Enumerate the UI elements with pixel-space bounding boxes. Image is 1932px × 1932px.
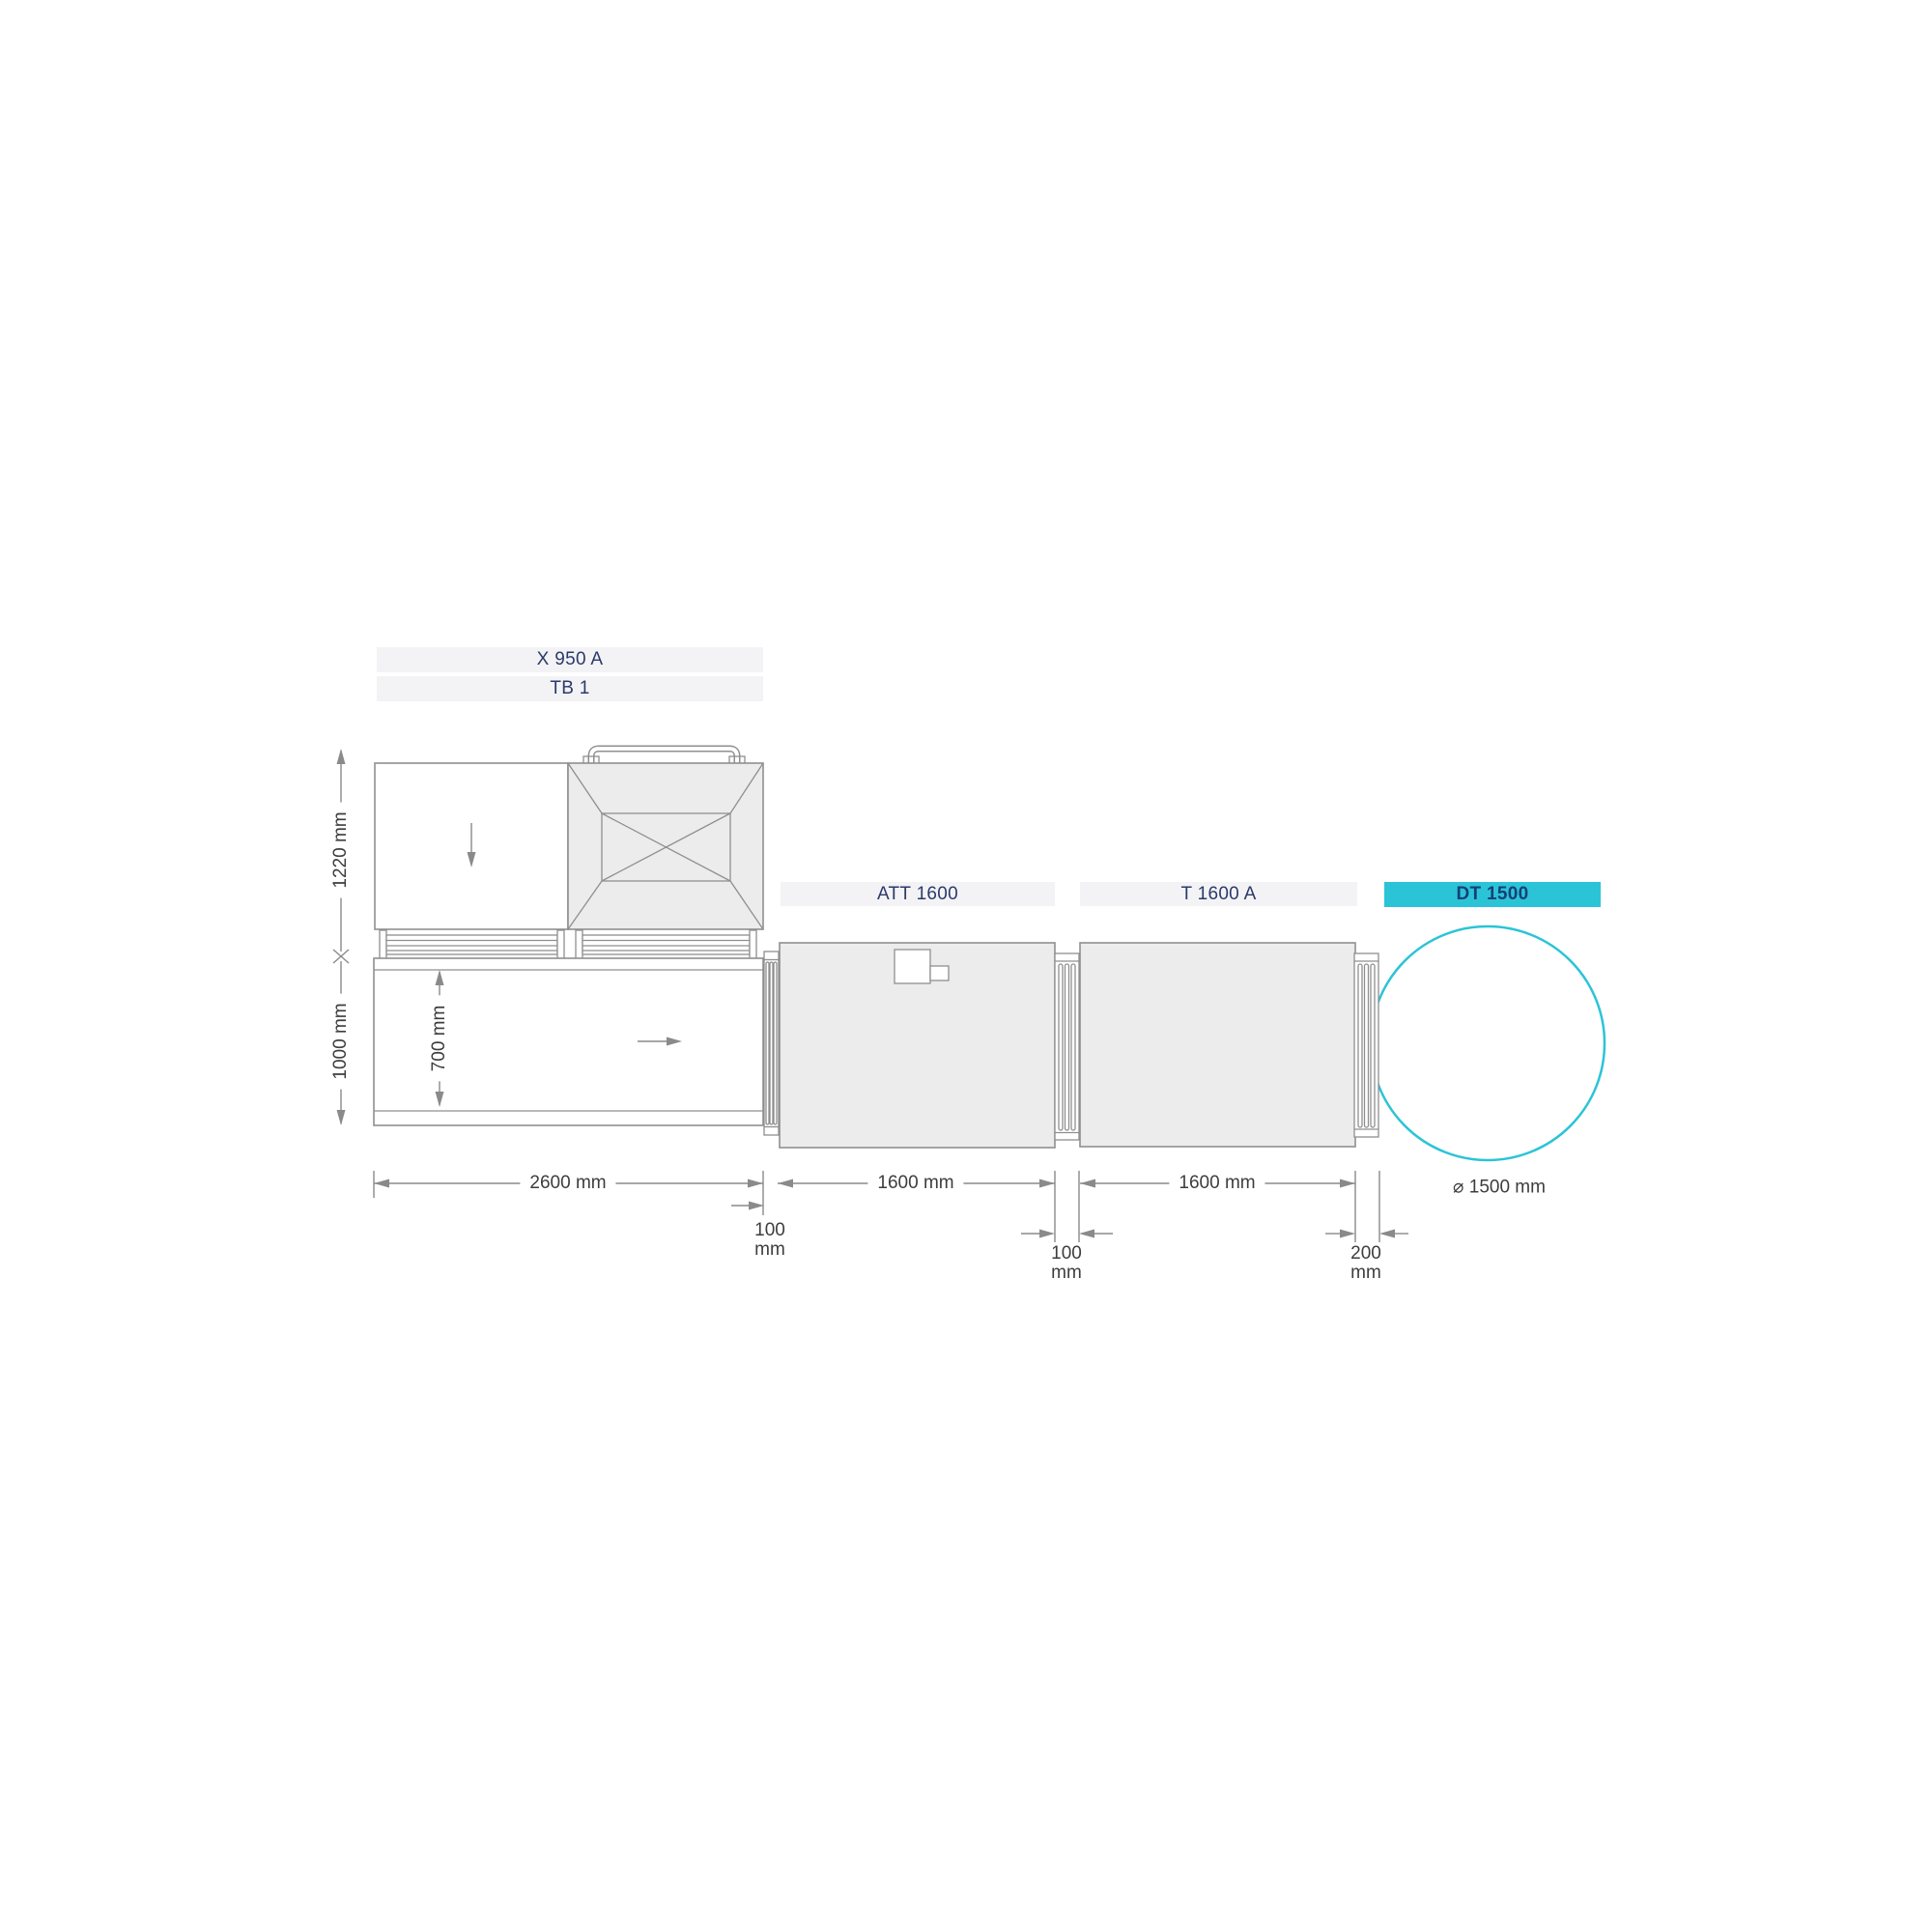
label-t1600a: T 1600 A (1180, 884, 1256, 905)
dim-gap-att-t: 100 mm (1051, 1244, 1082, 1283)
infeed-box (375, 763, 568, 929)
dim-gap-table-att-value: 100 (754, 1221, 785, 1240)
roller-bracket (750, 930, 756, 960)
roller-track (582, 935, 750, 954)
dim-gap-att-t-unit: mm (1051, 1264, 1082, 1283)
top-roller-conveyor (380, 930, 756, 960)
dim-gap-table-att-unit: mm (754, 1240, 785, 1260)
att-top-unit (895, 950, 930, 983)
roller-junction-2 (1055, 953, 1079, 1140)
label-bar-t1600a: T 1600 A (1080, 882, 1357, 906)
att-top-unit-attachment (930, 966, 949, 980)
label-bar-dt1500: DT 1500 (1384, 882, 1601, 907)
diagram-drawing (0, 0, 1932, 1932)
dim-turntable-diameter: ⌀ 1500 mm (1453, 1177, 1546, 1199)
turntable-circle (1371, 926, 1605, 1160)
roller-track (386, 935, 557, 954)
roller-bracket (576, 930, 582, 960)
t-machine (1080, 943, 1355, 1147)
att-machine (780, 943, 1055, 1148)
roller-bracket (380, 930, 386, 960)
roller-junction-1 (764, 952, 779, 1135)
label-x950a: X 950 A (537, 649, 604, 670)
dim-t-length: 1600 mm (1169, 1173, 1264, 1194)
dim-table-length: 2600 mm (520, 1173, 615, 1194)
dim-att-length: 1600 mm (867, 1173, 963, 1194)
dim-gap-att-t-value: 100 (1051, 1244, 1082, 1264)
dim-belt-width: 700 mm (429, 996, 450, 1082)
tb1-hopper (568, 749, 763, 929)
dim-gap-table-att: 100 mm (754, 1221, 785, 1260)
label-bar-att1600: ATT 1600 (781, 882, 1055, 906)
roller-junction-3 (1354, 953, 1378, 1137)
handle-icon (591, 749, 737, 763)
dim-gap-t-dt: 200 mm (1350, 1244, 1381, 1283)
label-tb1: TB 1 (550, 678, 589, 699)
dim-bottom-height: 1000 mm (330, 993, 352, 1089)
dim-gap-t-dt-value: 200 (1350, 1244, 1381, 1264)
dim-top-height: 1220 mm (330, 802, 352, 897)
label-dt1500: DT 1500 (1457, 884, 1529, 905)
label-att1600: ATT 1600 (877, 884, 958, 905)
dim-gap-t-dt-unit: mm (1350, 1264, 1381, 1283)
layout-diagram: X 950 A TB 1 ATT 1600 T 1600 A DT 1500 1… (0, 0, 1932, 1932)
roller-bracket (557, 930, 564, 960)
label-bar-x950a: X 950 A (377, 647, 763, 672)
label-bar-tb1: TB 1 (377, 676, 763, 701)
t-machine-body (1080, 943, 1355, 1147)
